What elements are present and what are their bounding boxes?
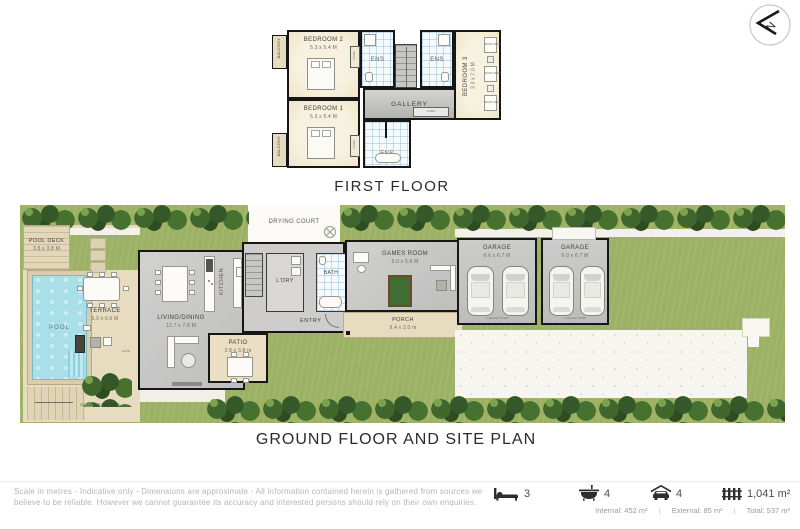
bunk-bed: BUNK BED <box>484 95 497 111</box>
bedroom-3-dims: 3.3 x 7.0 M <box>471 46 478 106</box>
living-dining-dims: 12.7 x 7.8 M <box>142 323 220 330</box>
garage-right-label: GARAGE <box>543 244 607 253</box>
bedroom-2: BEDROOM 2 5.3 x 5.4 M ROBE <box>287 30 360 99</box>
shower <box>438 34 450 46</box>
internal-area: Internal: 452 m² <box>595 506 648 515</box>
toilet <box>365 72 373 82</box>
pillow <box>311 61 320 68</box>
staircase <box>395 44 417 88</box>
staircase <box>245 253 263 297</box>
garage-right: GARAGE 6.0 x 6.7 M GARAGE DOOR <box>541 238 609 325</box>
store-box <box>552 227 596 240</box>
separator: | <box>734 506 736 515</box>
terrace-dims: 5.0 x 6.6 M <box>70 316 140 323</box>
porch-column <box>346 331 350 335</box>
terrace-label: TERRACE <box>70 307 140 316</box>
driveway <box>455 330 747 398</box>
tv-unit <box>172 382 202 386</box>
bedroom-3-label: BEDROOM 3 <box>462 46 471 106</box>
garage-left-dims: 6.6 x 6.7 M <box>459 253 535 260</box>
ensuite-left-label: ENS <box>362 56 393 65</box>
pillow <box>322 61 331 68</box>
disclaimer-line-2: believe to be reliable. However we canno… <box>14 498 477 507</box>
utility-marker-stem <box>748 335 759 347</box>
chair <box>155 280 161 285</box>
patio-label: PATIO <box>210 339 266 348</box>
bath-icon <box>578 485 600 501</box>
bed <box>307 58 335 90</box>
disclaimer-line-1: Scale in metres - Indicative only - Dime… <box>14 487 482 496</box>
pillow <box>322 130 331 137</box>
stair-rail <box>406 47 407 87</box>
chair <box>123 286 129 291</box>
bedroom-2-dims: 5.3 x 5.4 M <box>289 45 358 52</box>
garage-left: GARAGE 6.6 x 6.7 M GARAGE DOOR <box>457 238 537 325</box>
chair <box>99 272 105 277</box>
chair <box>243 352 249 357</box>
entry-door-arc <box>325 314 339 328</box>
bathroom: BATH <box>316 253 346 312</box>
car-rear-window <box>471 307 490 312</box>
outdoor-shower-label: OUTDOOR SHOWER <box>68 403 132 408</box>
chair <box>231 378 237 383</box>
separator: | <box>659 506 661 515</box>
laundry-label: L'DRY <box>267 278 303 286</box>
cooktop <box>207 279 213 285</box>
footer-divider <box>0 481 800 482</box>
dining-table <box>162 266 188 302</box>
fence-land-icon <box>722 487 742 501</box>
ensuite-left: ENS <box>360 30 395 88</box>
shower <box>364 34 376 46</box>
kitchen-bench <box>204 256 215 312</box>
car-roof <box>471 282 490 298</box>
kitchen-label: KITCHEN <box>219 268 227 295</box>
car-rear-window <box>553 307 570 312</box>
bunk-bed-label: BUNK BED <box>485 72 496 76</box>
garage-right-dims: 6.0 x 6.7 M <box>543 253 607 260</box>
floor-plan-page: N BALCONY BALCONY BEDROOM 2 5.3 x 5.4 M … <box>0 0 800 529</box>
gallery: GALLERY LINEN <box>363 88 456 120</box>
balcony-top: BALCONY <box>272 35 287 69</box>
car-windshield <box>553 274 570 281</box>
gate-label: GATE <box>122 350 130 354</box>
bathroom-label: BATH <box>317 270 345 277</box>
desk-chair <box>357 265 366 273</box>
billiard-table <box>388 275 412 307</box>
linen-closet: LINEN <box>413 107 449 117</box>
chair <box>155 270 161 275</box>
side-table <box>90 337 101 348</box>
outdoor-lounge <box>83 325 91 331</box>
car <box>502 266 529 316</box>
pillow <box>311 130 320 137</box>
patio-table <box>227 357 253 377</box>
car-rear-window <box>506 307 525 312</box>
balcony-label: BALCONY <box>276 38 282 59</box>
sofa <box>450 265 456 291</box>
bathtub <box>375 153 401 163</box>
first-floor-title: FIRST FLOOR <box>334 178 449 195</box>
bunk-ladder <box>487 85 494 92</box>
stepping-stone <box>90 238 106 249</box>
area-breakdown: Internal: 452 m² | External: 85 m² | Tot… <box>595 506 790 515</box>
garage-door-label: GARAGE DOOR <box>459 317 535 321</box>
garage-left-label: GARAGE <box>459 244 535 253</box>
cars-count: 4 <box>676 488 682 500</box>
bunk-bed-label: BUNK BED <box>485 43 496 47</box>
car-roof <box>584 282 601 298</box>
ground-floor-title: GROUND FLOOR AND SITE PLAN <box>256 431 536 449</box>
car <box>549 266 574 316</box>
porch-label: PORCH <box>344 317 462 325</box>
site-plan: DRYING COURT POOL DECK 3.8 x 3.8 M POOL <box>20 205 785 423</box>
car-garage-icon <box>650 485 672 501</box>
land-area-value: 1,041 m² <box>747 488 790 500</box>
car-roof <box>553 282 570 298</box>
stepping-stone <box>90 250 106 261</box>
side-table <box>436 280 447 291</box>
chair <box>155 290 161 295</box>
pool-deck-label: POOL DECK <box>24 238 69 246</box>
bunk-bed: BUNK BED <box>484 37 497 53</box>
chair <box>189 290 195 295</box>
terrace: TERRACE 5.0 x 6.6 M GATE <box>70 270 140 385</box>
chair <box>189 280 195 285</box>
patio: PATIO 3.8 x 3.8 m <box>208 333 268 383</box>
robe-label: ROBE <box>353 51 357 60</box>
bedroom-3: BEDROOM 3 3.3 x 7.0 M BUNK BED BUNK BED … <box>454 30 501 120</box>
pool-deck-dims: 3.8 x 3.8 M <box>24 246 69 253</box>
desk <box>353 252 369 263</box>
bathtub <box>319 296 342 308</box>
drying-court: DRYING COURT <box>248 205 340 242</box>
robe-closet: ROBE <box>350 46 360 68</box>
north-compass-icon: N <box>748 3 792 47</box>
living-dining-label: LIVING/DINING <box>142 314 220 323</box>
porch-dims: 9.4 x 2.0 m <box>344 325 462 332</box>
chair <box>231 352 237 357</box>
bed-icon <box>494 488 518 501</box>
porch: PORCH 9.4 x 2.0 m <box>343 312 463 338</box>
car-windshield <box>584 274 601 281</box>
robe-label: ROBE <box>353 140 357 149</box>
beds-count: 3 <box>524 488 530 500</box>
bedroom-1-label: BEDROOM 1 <box>289 105 358 114</box>
toilet <box>319 256 326 265</box>
laundry: L'DRY <box>266 253 304 312</box>
car-roof <box>506 282 525 298</box>
chair <box>111 272 117 277</box>
bbq <box>75 335 85 353</box>
chair <box>77 286 83 291</box>
games-room: GAMES ROOM 9.0 x 5.6 M <box>345 240 460 312</box>
washer <box>291 256 301 265</box>
car-rear-window <box>584 307 601 312</box>
sofa <box>167 336 175 368</box>
bath-wall <box>385 122 387 138</box>
baths-count: 4 <box>604 488 610 500</box>
clothesline-icon <box>324 226 336 238</box>
ensuite-right-label: ENS <box>422 56 452 65</box>
external-area: External: 85 m² <box>672 506 723 515</box>
bed <box>307 127 335 159</box>
car-windshield <box>471 274 490 281</box>
kitchen-island <box>233 258 242 308</box>
oven <box>206 259 213 272</box>
pool-deck: POOL DECK 3.8 x 3.8 M <box>23 225 70 270</box>
entry-label: ENTRY <box>300 318 322 326</box>
car <box>467 266 494 316</box>
toilet <box>441 72 449 82</box>
ensuite-right: ENS <box>420 30 454 88</box>
patio-dims: 3.8 x 3.8 m <box>210 348 266 355</box>
games-room-label: GAMES ROOM <box>365 250 445 259</box>
bedroom-2-label: BEDROOM 2 <box>289 36 358 45</box>
bedroom-1-dims: 5.3 x 5.4 M <box>289 114 358 121</box>
bunk-ladder <box>487 56 494 63</box>
linen-label: LINEN <box>414 110 448 114</box>
car-windshield <box>506 274 525 281</box>
chair <box>189 270 195 275</box>
chair <box>87 272 93 277</box>
coffee-table <box>181 353 196 368</box>
utility-block: L'DRY BATH ENTRY <box>242 242 345 333</box>
side-table <box>103 337 112 346</box>
drying-court-label: DRYING COURT <box>248 218 340 227</box>
bunk-bed: BUNK BED <box>484 66 497 82</box>
ensuite-bottom: ENS <box>363 120 411 168</box>
garage-door-label: GARAGE DOOR <box>543 317 607 321</box>
bedroom-1: BEDROOM 1 5.3 x 5.4 M ROBE <box>287 99 360 168</box>
total-area: Total: 537 m² <box>747 506 790 515</box>
tree-hedge-bottom <box>205 396 785 423</box>
robe-closet: ROBE <box>350 135 360 157</box>
chair <box>243 378 249 383</box>
balcony-bottom: BALCONY <box>272 133 287 167</box>
outdoor-dining-table <box>83 277 120 301</box>
balcony-label: BALCONY <box>276 136 282 157</box>
bunk-bed-label: BUNK BED <box>485 101 496 105</box>
car <box>580 266 605 316</box>
dryer <box>291 267 301 276</box>
